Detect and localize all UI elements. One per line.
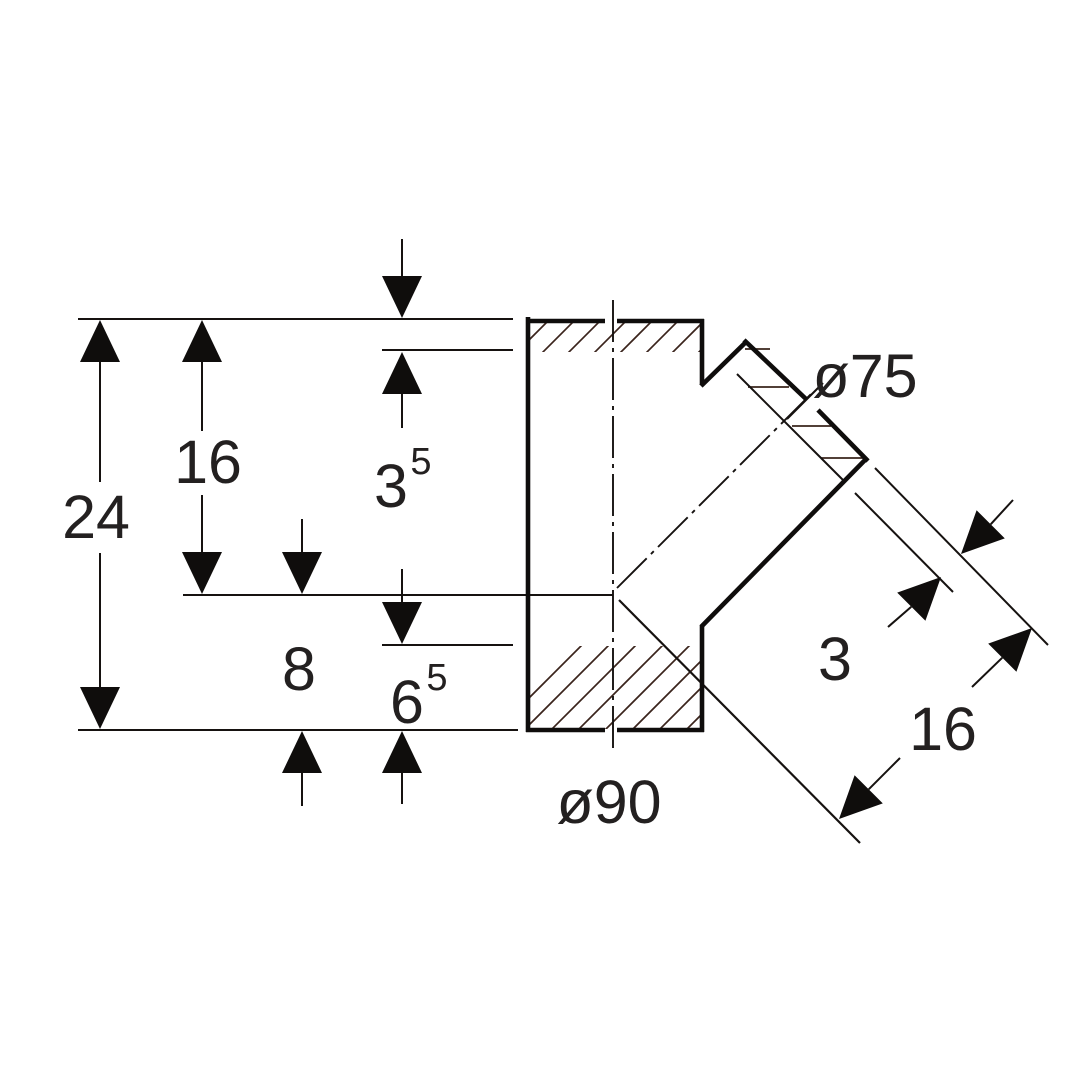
extension-lines xyxy=(78,319,613,730)
hatch-bottom-flange xyxy=(496,644,772,731)
branch-reference-lines xyxy=(619,374,1048,843)
branch-axis-centerline xyxy=(617,393,812,588)
end-face-lower xyxy=(818,410,868,461)
dim-branch-length-16: 16 xyxy=(839,628,1032,819)
hatch-top-flange xyxy=(516,319,732,353)
main-diameter-label: ø90 xyxy=(556,768,661,836)
branch-wall-label: 3 xyxy=(818,625,852,693)
dim-upper-height-16: 16 xyxy=(174,320,242,594)
dim-top-wall-35: 3 5 xyxy=(374,239,432,520)
bottom-wall-sup: 5 xyxy=(426,657,447,699)
end-face-extension-line xyxy=(875,468,1048,645)
top-wall-label: 3 xyxy=(374,452,408,520)
technical-drawing-canvas: 24 16 3 5 8 6 5 3 xyxy=(0,0,1080,1080)
notch-rise xyxy=(701,342,746,386)
dim-branch-wall-3: 3 xyxy=(818,500,1013,693)
top-wall-sup: 5 xyxy=(410,441,431,483)
socket-inner-extension xyxy=(855,493,953,592)
branch-lower-wall xyxy=(701,459,866,627)
dim-total-height-24: 24 xyxy=(62,320,130,729)
branch-diameter-label: ø75 xyxy=(812,342,917,410)
total-height-label: 24 xyxy=(62,483,130,551)
drawing-page: 24 16 3 5 8 6 5 3 xyxy=(0,0,1080,1080)
centerlines xyxy=(613,300,812,749)
dim-bottom-wall-65: 6 5 xyxy=(382,569,448,804)
upper-height-label: 16 xyxy=(174,428,242,496)
bottom-wall-label: 6 xyxy=(390,668,424,736)
lower-height-label: 8 xyxy=(282,635,316,703)
dim-lower-height-8: 8 xyxy=(282,519,322,806)
branch-length-label: 16 xyxy=(909,695,977,763)
